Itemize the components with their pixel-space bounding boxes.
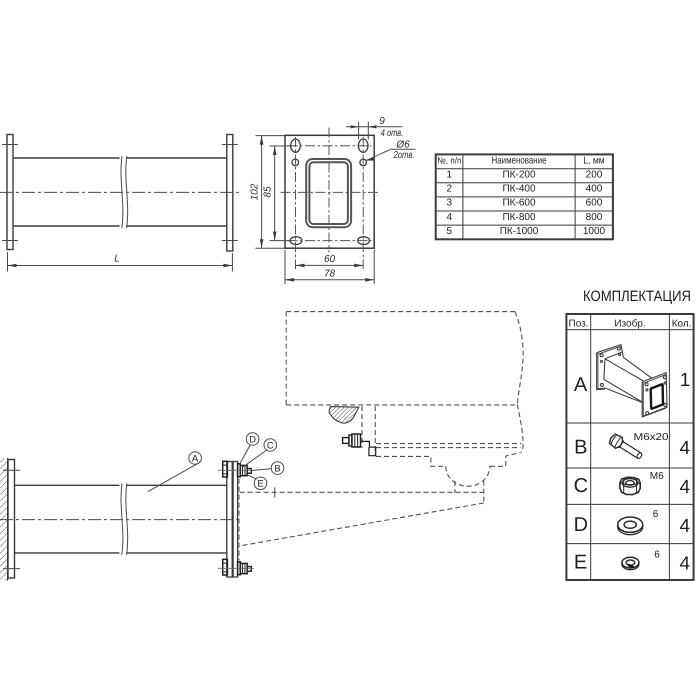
svg-text:КОМПЛЕКТАЦИЯ: КОМПЛЕКТАЦИЯ bbox=[583, 288, 691, 305]
svg-text:№, п/п: №, п/п bbox=[437, 155, 461, 165]
svg-text:L, мм: L, мм bbox=[583, 155, 605, 166]
svg-text:C: C bbox=[267, 440, 274, 451]
svg-text:1: 1 bbox=[447, 170, 453, 181]
svg-text:3: 3 bbox=[447, 198, 453, 209]
svg-text:B: B bbox=[574, 437, 587, 459]
svg-text:78: 78 bbox=[324, 268, 336, 279]
svg-text:400: 400 bbox=[586, 184, 603, 195]
svg-text:Наименование: Наименование bbox=[492, 155, 547, 166]
svg-text:600: 600 bbox=[586, 198, 603, 209]
svg-text:E: E bbox=[257, 479, 263, 490]
svg-text:4: 4 bbox=[447, 212, 453, 223]
svg-text:М6х20: М6х20 bbox=[634, 432, 670, 443]
svg-text:4: 4 bbox=[680, 554, 691, 575]
svg-text:E: E bbox=[574, 552, 587, 574]
svg-text:60: 60 bbox=[324, 254, 336, 265]
svg-text:200: 200 bbox=[586, 170, 603, 181]
svg-text:1000: 1000 bbox=[583, 226, 606, 237]
svg-text:L: L bbox=[114, 254, 120, 265]
svg-text:800: 800 bbox=[586, 212, 603, 223]
svg-text:Изобр.: Изобр. bbox=[614, 319, 645, 330]
svg-text:6: 6 bbox=[654, 550, 660, 561]
svg-text:ПК-1000: ПК-1000 bbox=[500, 226, 539, 237]
svg-text:М6: М6 bbox=[650, 471, 664, 482]
svg-text:85: 85 bbox=[263, 186, 274, 198]
svg-text:B: B bbox=[274, 463, 280, 474]
svg-text:1: 1 bbox=[680, 370, 691, 391]
svg-text:2: 2 bbox=[447, 184, 453, 195]
svg-text:6: 6 bbox=[653, 509, 659, 520]
svg-text:Ø6: Ø6 bbox=[395, 139, 410, 150]
svg-text:5: 5 bbox=[447, 226, 453, 237]
svg-text:Кол.: Кол. bbox=[672, 319, 692, 330]
svg-text:ПК-800: ПК-800 bbox=[502, 212, 535, 223]
svg-text:102: 102 bbox=[250, 183, 261, 200]
svg-text:ПК-600: ПК-600 bbox=[502, 198, 535, 209]
svg-text:4: 4 bbox=[680, 477, 691, 498]
svg-text:D: D bbox=[249, 434, 256, 445]
svg-text:Поз.: Поз. bbox=[569, 319, 589, 330]
svg-text:2отв.: 2отв. bbox=[393, 150, 415, 161]
svg-text:ПК-200: ПК-200 bbox=[502, 170, 535, 181]
svg-text:4: 4 bbox=[680, 516, 691, 537]
svg-text:D: D bbox=[574, 514, 588, 536]
svg-text:9: 9 bbox=[379, 116, 385, 127]
svg-text:A: A bbox=[574, 374, 588, 396]
svg-text:4 отв.: 4 отв. bbox=[381, 128, 404, 139]
svg-text:C: C bbox=[574, 475, 588, 497]
svg-text:A: A bbox=[192, 453, 199, 464]
svg-text:ПК-400: ПК-400 bbox=[502, 184, 535, 195]
svg-text:4: 4 bbox=[680, 438, 691, 459]
